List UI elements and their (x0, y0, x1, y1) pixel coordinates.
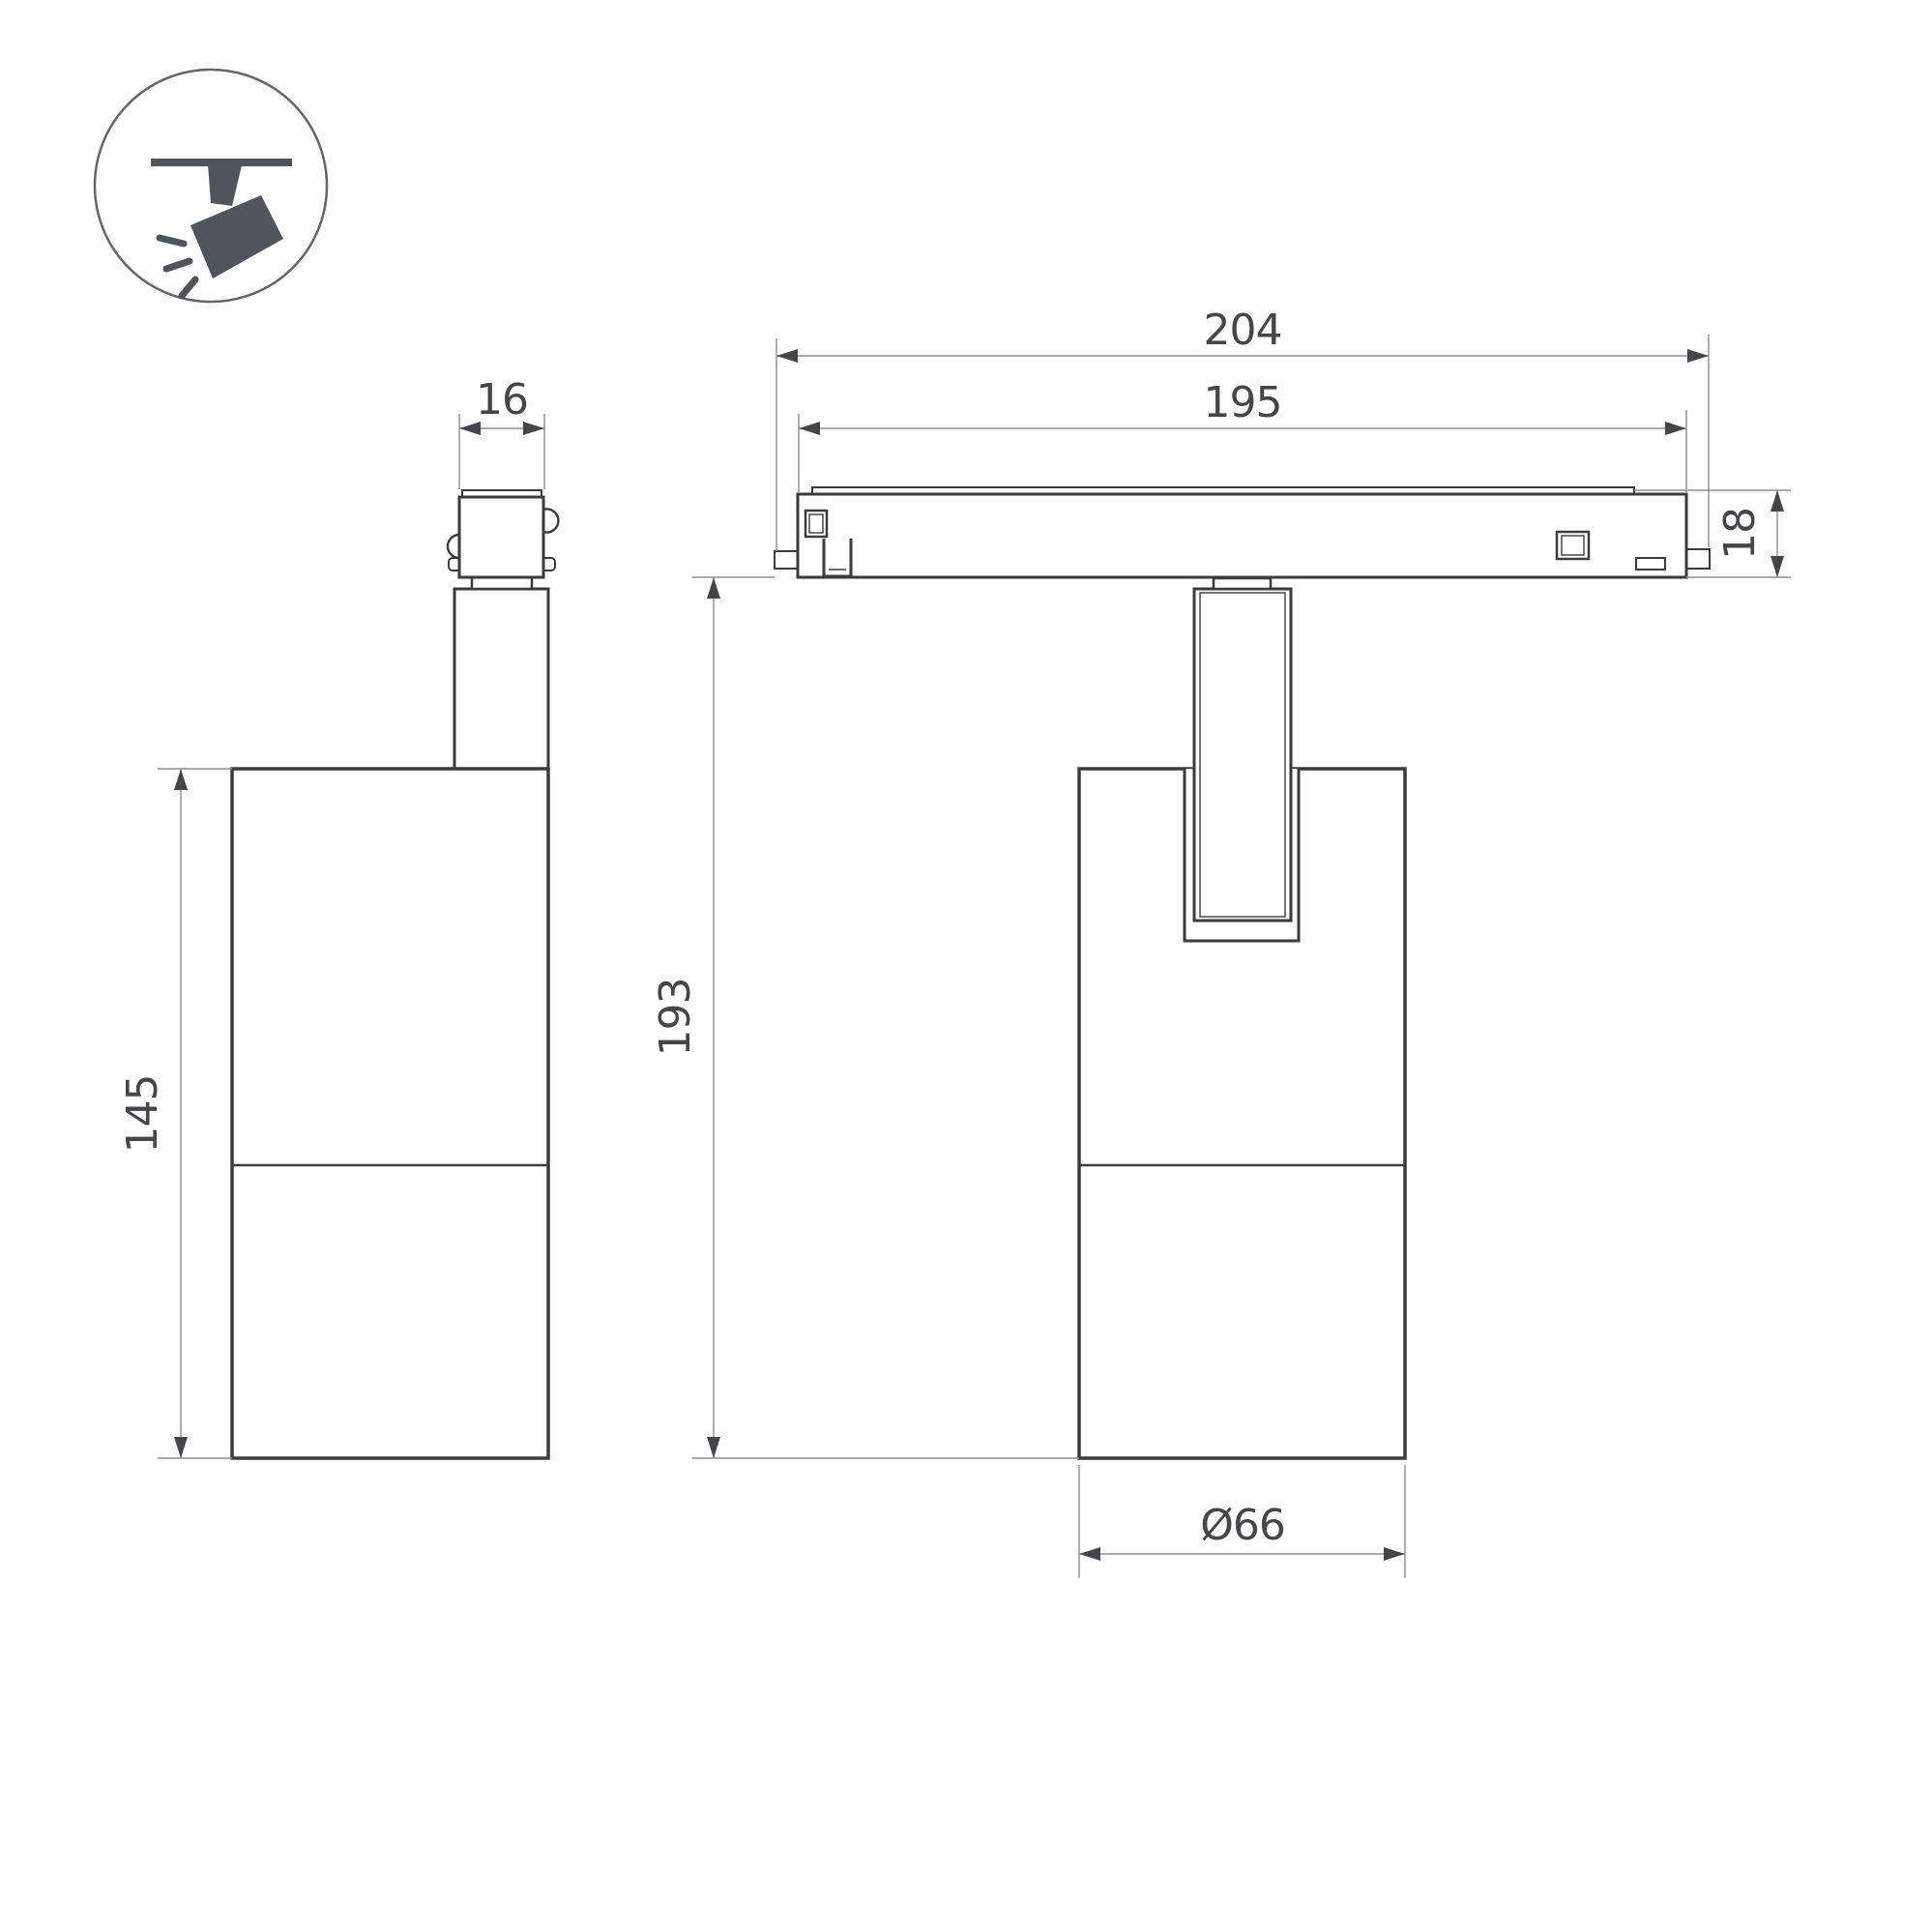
dim-body-height: 145 (118, 769, 232, 1458)
dim-label-204: 204 (1204, 306, 1282, 355)
arrow-up-icon (707, 577, 720, 599)
dim-body-diameter: Ø66 (1079, 1465, 1405, 1578)
track-slot-right (1636, 558, 1665, 570)
side-adapter-ear-right (543, 510, 558, 533)
arrow-down-icon (174, 1437, 188, 1458)
side-view (232, 490, 558, 1458)
side-neck (472, 577, 532, 589)
dim-adapter-width: 16 (459, 375, 544, 489)
front-stem (1194, 589, 1291, 921)
dim-label-16: 16 (476, 375, 528, 424)
track-spotlight-icon (95, 70, 327, 302)
track-connector-right (1686, 549, 1710, 569)
arrow-left-icon (799, 422, 820, 435)
arrow-right-icon (1687, 349, 1709, 363)
arrow-up-icon (1771, 490, 1784, 512)
arrow-up-icon (174, 769, 188, 790)
drawing-canvas: 16 145 (0, 0, 1932, 1932)
dim-label-193: 193 (651, 979, 700, 1057)
front-view (775, 487, 1710, 1458)
technical-drawing-page: 16 145 (0, 0, 1932, 1932)
side-stem (454, 589, 548, 769)
side-track-adapter (459, 497, 543, 577)
track-connector-left (775, 551, 798, 569)
dim-track-body: 195 (799, 378, 1686, 492)
dim-drop-height: 193 (651, 577, 1079, 1458)
arrow-right-icon (1665, 422, 1686, 435)
arrow-left-icon (1079, 1547, 1100, 1561)
dim-label-195: 195 (1204, 378, 1282, 427)
side-body (232, 769, 548, 1458)
arrow-down-icon (1771, 556, 1784, 577)
arrow-down-icon (707, 1437, 720, 1458)
side-adapter-ear-left (448, 535, 459, 558)
magnetic-track (798, 494, 1686, 577)
dim-label-18: 18 (1715, 508, 1765, 560)
arrow-right-icon (1384, 1547, 1405, 1561)
dim-label-d66: Ø66 (1200, 1501, 1285, 1550)
front-collar (1214, 578, 1271, 589)
dim-label-145: 145 (118, 1075, 167, 1154)
arrow-left-icon (776, 349, 798, 363)
